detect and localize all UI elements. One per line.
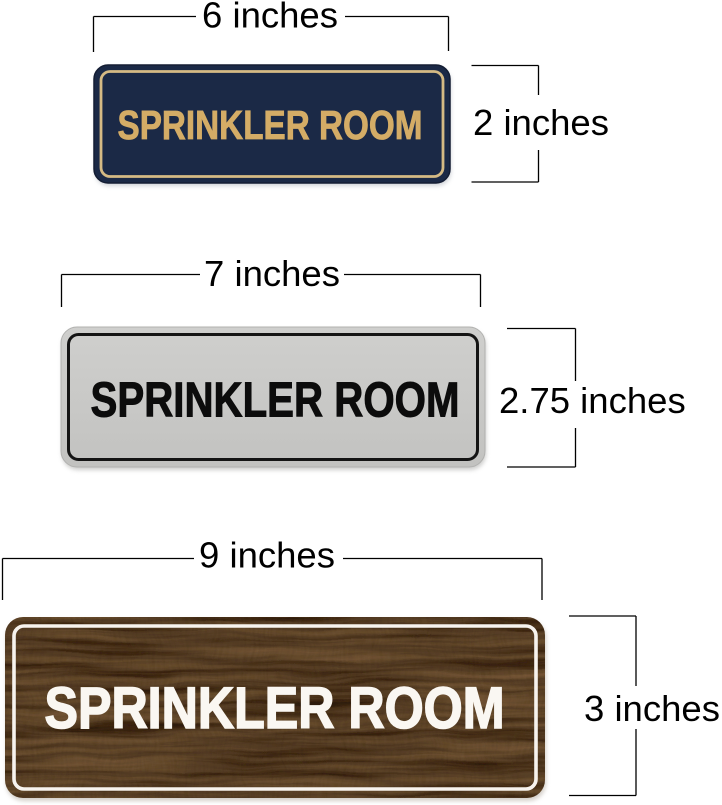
- svg-text:SPRINKLER ROOM: SPRINKLER ROOM: [45, 676, 505, 741]
- svg-text:6 inches: 6 inches: [202, 0, 338, 36]
- svg-text:SPRINKLER ROOM: SPRINKLER ROOM: [118, 102, 423, 148]
- svg-text:SPRINKLER ROOM: SPRINKLER ROOM: [91, 374, 460, 428]
- svg-text:9 inches: 9 inches: [199, 535, 335, 576]
- svg-text:3 inches: 3 inches: [584, 688, 720, 729]
- svg-text:2 inches: 2 inches: [473, 102, 609, 143]
- svg-text:2.75 inches: 2.75 inches: [499, 380, 686, 421]
- svg-text:7 inches: 7 inches: [204, 253, 340, 294]
